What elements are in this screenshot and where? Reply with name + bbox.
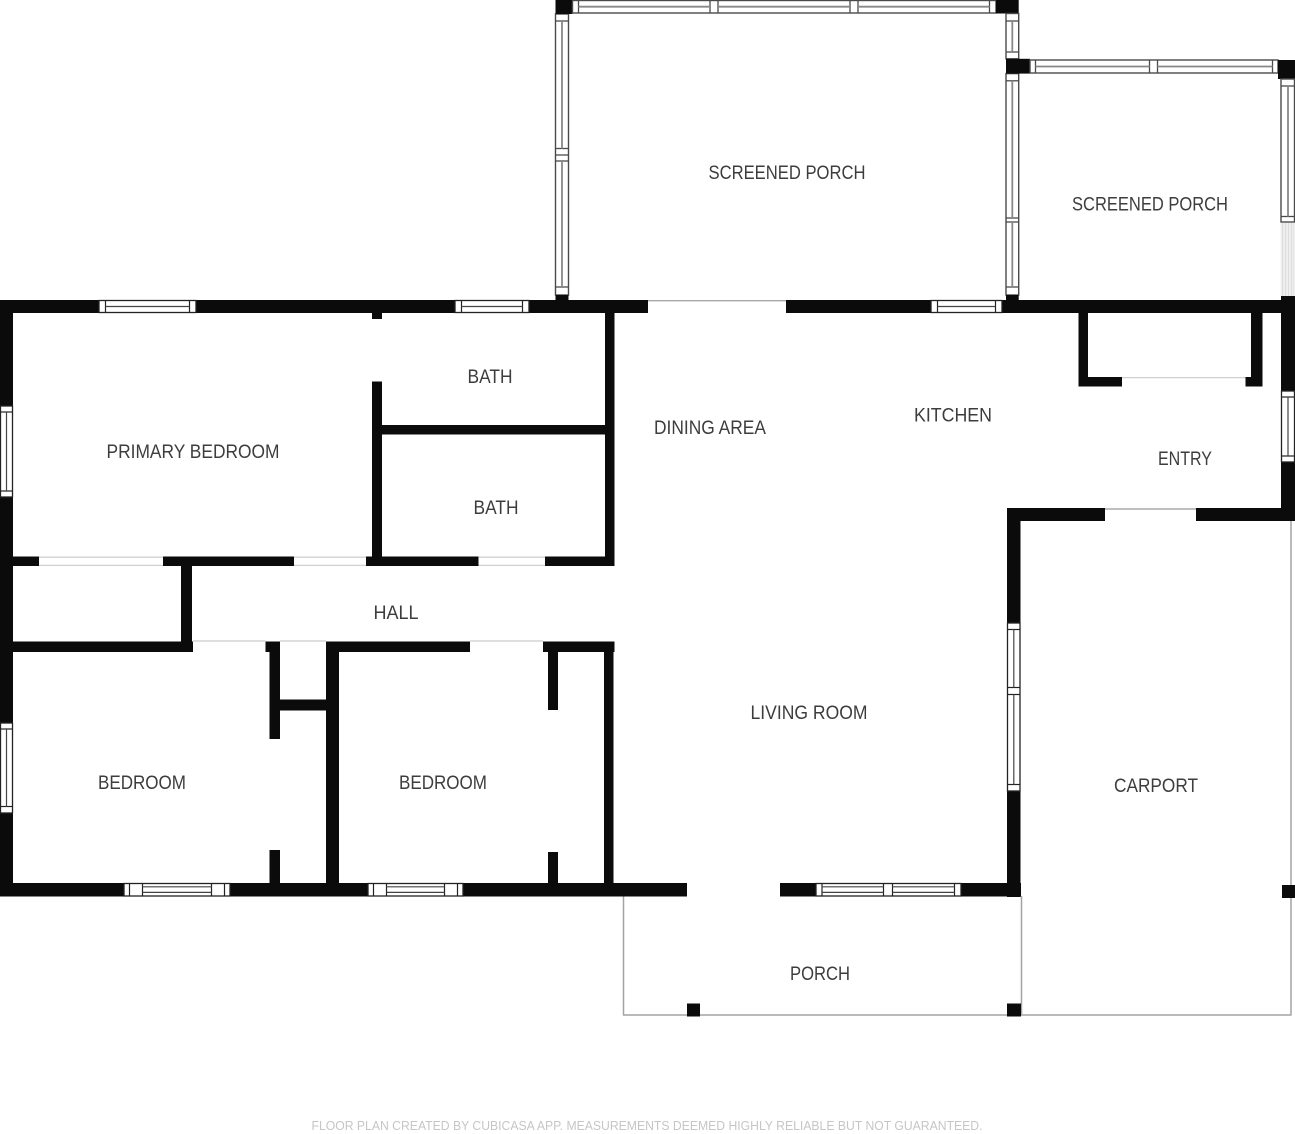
svg-text:BEDROOM: BEDROOM — [399, 773, 487, 794]
svg-text:PRIMARY BEDROOM: PRIMARY BEDROOM — [107, 442, 280, 463]
svg-text:SCREENED PORCH: SCREENED PORCH — [709, 163, 866, 184]
svg-text:CARPORT: CARPORT — [1114, 776, 1198, 797]
svg-text:ENTRY: ENTRY — [1158, 449, 1212, 470]
svg-text:BEDROOM: BEDROOM — [98, 773, 186, 794]
svg-text:HALL: HALL — [374, 603, 419, 624]
svg-text:DINING AREA: DINING AREA — [654, 418, 766, 439]
svg-text:BATH: BATH — [474, 498, 519, 519]
svg-text:LIVING ROOM: LIVING ROOM — [751, 703, 868, 724]
svg-text:SCREENED PORCH: SCREENED PORCH — [1072, 195, 1228, 216]
svg-text:FLOOR PLAN CREATED BY CUBICASA: FLOOR PLAN CREATED BY CUBICASA APP. MEAS… — [312, 1118, 983, 1133]
svg-text:KITCHEN: KITCHEN — [914, 406, 992, 427]
svg-text:PORCH: PORCH — [790, 964, 850, 985]
svg-text:BATH: BATH — [468, 367, 513, 388]
